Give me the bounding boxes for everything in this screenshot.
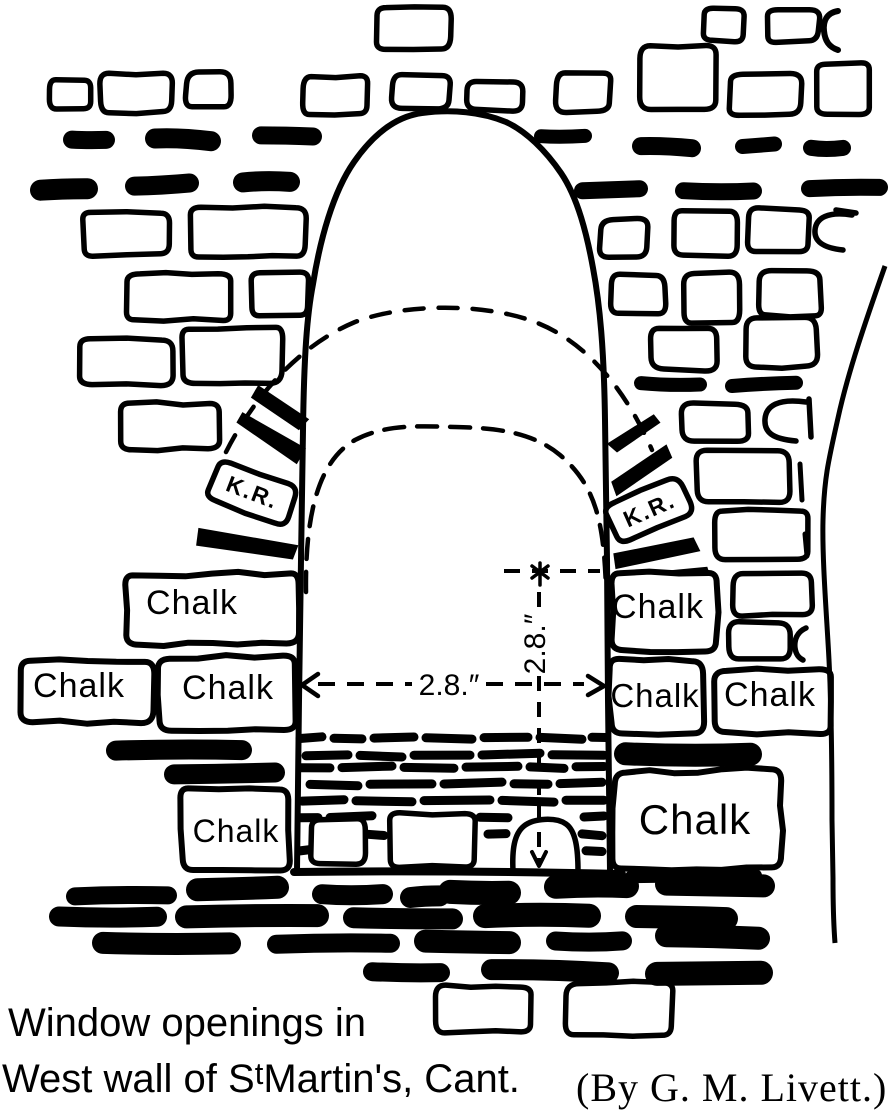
svg-text:2.8.″: 2.8.″ [419,669,480,702]
svg-text:Chalk: Chalk [724,676,816,714]
svg-text:Chalk: Chalk [612,588,704,626]
svg-text:Chalk: Chalk [33,667,125,705]
svg-text:Chalk: Chalk [146,584,238,622]
svg-text:Chalk: Chalk [193,813,280,849]
svg-text:(By G. M. Livett.): (By G. M. Livett.) [576,1065,887,1110]
svg-text:Window openings in: Window openings in [8,1001,366,1045]
svg-text:Chalk: Chalk [610,677,699,714]
svg-text:Chalk: Chalk [182,669,274,707]
svg-text:Chalk: Chalk [639,796,751,843]
svg-text:2.8.″: 2.8.″ [519,613,552,674]
